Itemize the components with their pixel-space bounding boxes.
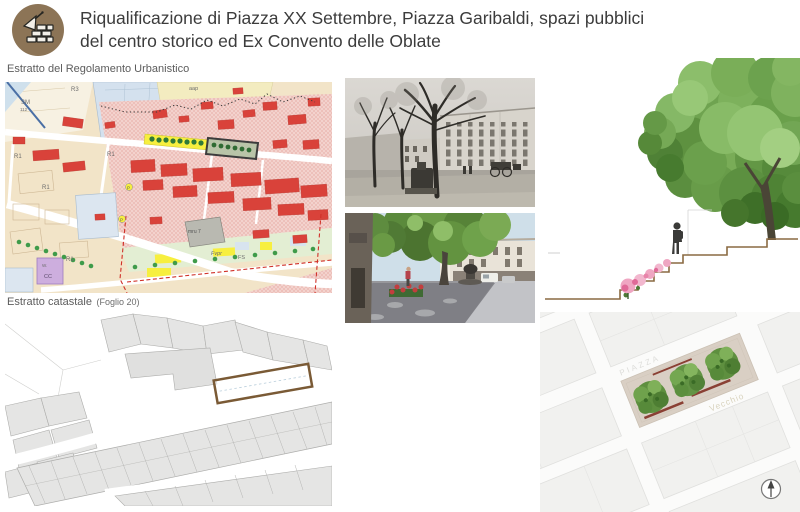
parking-label-1: P	[127, 186, 130, 191]
zone-label-r1d: R1	[66, 257, 74, 263]
catastale-section-label: Estratto catastale (Foglio 20)	[7, 292, 139, 310]
person-silhouette	[672, 222, 683, 254]
plane-tree-foliage	[638, 58, 800, 230]
zone-label-r1a: R1	[14, 154, 22, 160]
catastale-label-text: Estratto catastale	[7, 296, 92, 308]
parking-label-2: P	[120, 218, 123, 223]
zoning-map: SM 112 R3 aap R1 R1 R1 R1 W. CC mru 7 Fv…	[5, 82, 332, 293]
project-plan-map: PIAZZA Vecchio	[540, 312, 800, 512]
current-photo	[345, 213, 535, 323]
zone-label-cc: CC	[44, 274, 52, 280]
cc-zone	[37, 258, 63, 284]
zone-label-aap: aap	[189, 86, 198, 92]
fountain	[464, 264, 478, 274]
north-arrow-icon	[762, 480, 781, 499]
historic-photo	[345, 78, 535, 207]
zone-label-r1c: R1	[42, 185, 50, 191]
catastale-label-note: (Foglio 20)	[96, 297, 139, 307]
stepped-terraces-outline	[545, 239, 798, 299]
zone-label-r1b: R1	[107, 152, 115, 158]
cadastral-map	[5, 310, 332, 506]
section-drawing	[540, 58, 800, 306]
zone-label-fvpr: Fvpr	[211, 251, 223, 257]
zone-label-mru: mru 7	[188, 229, 201, 235]
urbanistico-section-label: Estratto del Regolamento Urbanistico	[7, 63, 189, 75]
masonry-trowel-icon	[11, 3, 65, 57]
zone-label-fs: FS	[238, 255, 245, 261]
title-line-1: Riqualificazione di Piazza XX Settembre,…	[80, 7, 680, 30]
zone-label-w: W.	[42, 263, 47, 268]
title-line-2: del centro storico ed Ex Convento delle …	[80, 30, 680, 53]
project-board: Riqualificazione di Piazza XX Settembre,…	[0, 0, 800, 512]
zone-label-sm-num: 112	[20, 107, 28, 112]
zone-label-sm: SM	[21, 100, 30, 106]
page-title: Riqualificazione di Piazza XX Settembre,…	[80, 7, 680, 53]
zone-label-r3: R3	[71, 87, 79, 93]
flower-planters	[621, 259, 672, 299]
fountain-monument	[411, 168, 433, 190]
